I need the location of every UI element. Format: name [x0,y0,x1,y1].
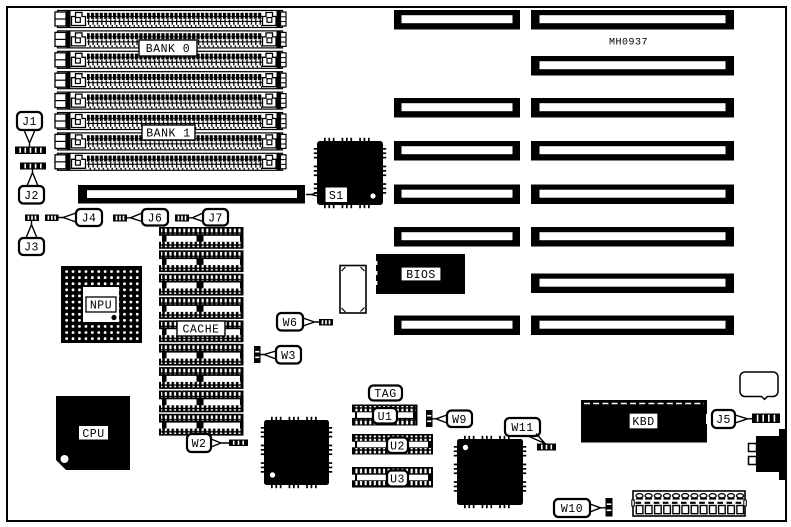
svg-text:CACHE: CACHE [182,324,219,337]
svg-text:S1: S1 [329,190,344,203]
svg-text:J4: J4 [82,213,97,226]
svg-text:W6: W6 [283,317,298,330]
svg-text:NPU: NPU [90,300,112,313]
svg-text:J2: J2 [24,190,39,203]
svg-text:W10: W10 [561,503,583,516]
svg-text:CPU: CPU [82,428,104,441]
svg-text:BIOS: BIOS [406,269,436,282]
svg-text:TAG: TAG [374,388,396,401]
svg-text:KBD: KBD [632,416,654,429]
svg-text:W11: W11 [511,422,533,435]
svg-text:W3: W3 [281,350,296,363]
svg-text:J5: J5 [716,414,731,427]
svg-text:J3: J3 [24,242,39,255]
svg-text:MH0937: MH0937 [609,38,648,49]
svg-text:BANK 0: BANK 0 [146,43,190,56]
svg-text:U2: U2 [390,440,405,453]
svg-text:J7: J7 [208,212,223,225]
svg-text:U3: U3 [390,474,405,487]
svg-text:U1: U1 [378,411,393,424]
svg-text:J6: J6 [148,212,163,225]
svg-text:W2: W2 [192,438,207,451]
svg-text:W9: W9 [452,414,467,427]
svg-text:J1: J1 [22,116,37,129]
svg-text:BANK 1: BANK 1 [146,128,190,141]
